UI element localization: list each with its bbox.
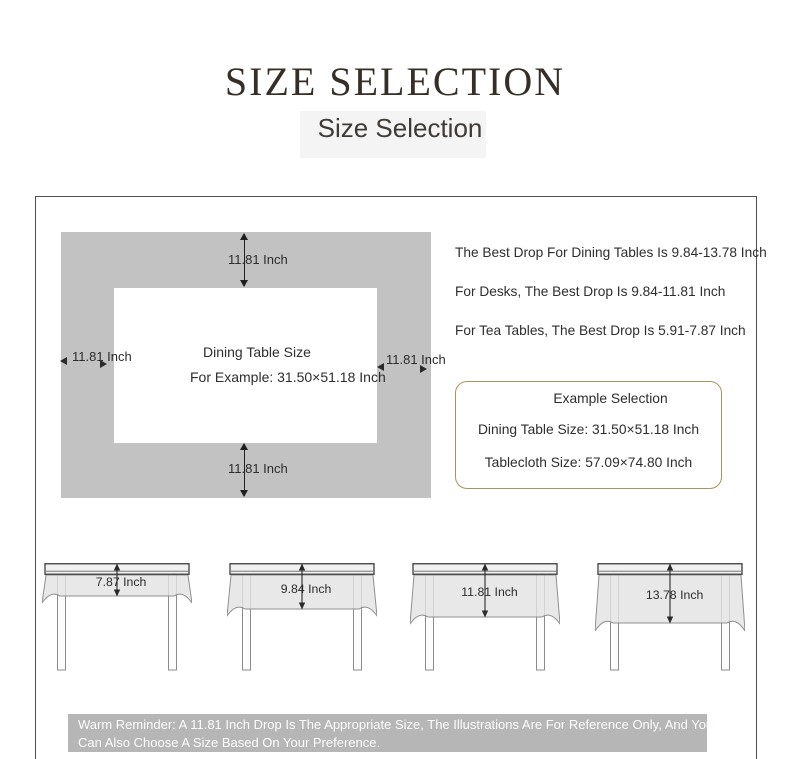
dining-table-area bbox=[114, 288, 377, 443]
right-drop-label: 11.81 Inch bbox=[386, 352, 446, 367]
table-size-example: For Example: 31.50×51.18 Inch bbox=[190, 369, 386, 385]
drop-illustration-7-87: 7.87 Inch bbox=[42, 563, 192, 675]
left-drop-label: 11.81 Inch bbox=[72, 349, 132, 364]
left-drop-arrowhead-icon bbox=[60, 357, 67, 365]
top-drop-label: 11.81 Inch bbox=[228, 252, 288, 267]
table-size-label: Dining Table Size bbox=[203, 344, 311, 360]
example-box-title: Example Selection bbox=[478, 391, 743, 406]
page-subtitle: Size Selection bbox=[5, 113, 790, 144]
drop-value-label: 13.78 Inch bbox=[646, 588, 703, 602]
table-drawing-icon bbox=[595, 563, 745, 675]
drop-illustration-13-78: 13.78 Inch bbox=[595, 563, 745, 675]
tip-dining-tables: The Best Drop For Dining Tables Is 9.84-… bbox=[455, 245, 767, 260]
drop-value-label: 7.87 Inch bbox=[96, 575, 147, 589]
table-drawing-icon bbox=[410, 563, 560, 675]
drop-value-label: 9.84 Inch bbox=[281, 582, 332, 596]
right-drop-arrowhead-icon bbox=[377, 363, 384, 371]
example-dining-table-size: Dining Table Size: 31.50×51.18 Inch bbox=[456, 422, 721, 437]
tip-tea-tables: For Tea Tables, The Best Drop Is 5.91-7.… bbox=[455, 323, 746, 338]
size-selection-infographic: SIZE SELECTION Size Selection Dining Tab… bbox=[0, 0, 790, 759]
warm-reminder-line2: Can Also Choose A Size Based On Your Pre… bbox=[78, 734, 707, 752]
example-tablecloth-size: Tablecloth Size: 57.09×74.80 Inch bbox=[456, 455, 721, 470]
bottom-drop-label: 11.81 Inch bbox=[228, 461, 288, 476]
warm-reminder-line1: Warm Reminder: A 11.81 Inch Drop Is The … bbox=[78, 716, 707, 734]
drop-value-label: 11.81 Inch bbox=[461, 585, 518, 599]
example-selection-box: Example Selection Dining Table Size: 31.… bbox=[455, 381, 722, 489]
drop-illustration-9-84: 9.84 Inch bbox=[227, 563, 377, 675]
warm-reminder-bar: Warm Reminder: A 11.81 Inch Drop Is The … bbox=[68, 714, 707, 752]
tip-desks: For Desks, The Best Drop Is 9.84-11.81 I… bbox=[455, 284, 725, 299]
table-drawing-icon bbox=[227, 563, 377, 675]
page-title: SIZE SELECTION bbox=[0, 58, 790, 105]
drop-illustration-11-81: 11.81 Inch bbox=[410, 563, 560, 675]
